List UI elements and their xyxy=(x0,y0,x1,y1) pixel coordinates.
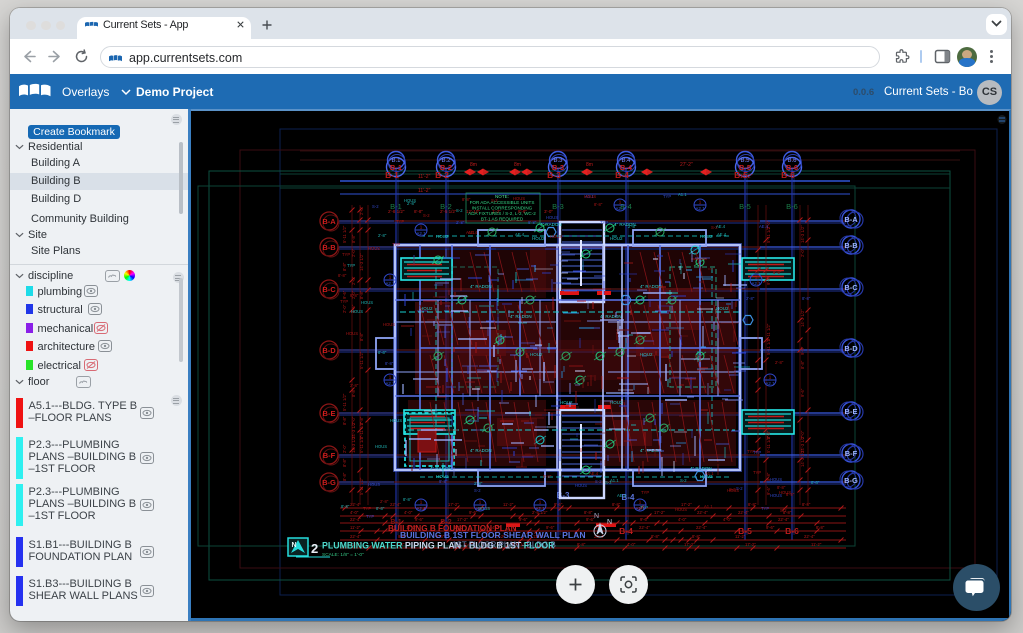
svg-text:TYP: TYP xyxy=(641,490,649,495)
svg-text:2'-0": 2'-0" xyxy=(342,444,347,453)
svg-text:22'-4": 22'-4" xyxy=(696,525,707,530)
svg-text:8m: 8m xyxy=(470,162,477,168)
svg-text:B-E: B-E xyxy=(845,407,858,416)
svg-text:HOUS: HOUS xyxy=(550,234,562,239)
svg-text:17'-2": 17'-2" xyxy=(684,542,695,547)
svg-text:4'-0": 4'-0" xyxy=(627,542,636,547)
svg-text:TYP: TYP xyxy=(342,252,350,257)
svg-text:TYP: TYP xyxy=(753,470,761,475)
svg-text:2'-8": 2'-8" xyxy=(474,481,483,486)
svg-text:2'-8": 2'-8" xyxy=(628,224,637,229)
svg-text:HOU2: HOU2 xyxy=(436,234,449,239)
svg-text:8'-8": 8'-8" xyxy=(414,209,423,214)
svg-text:8'-8": 8'-8" xyxy=(800,360,805,369)
svg-text:8'-8": 8'-8" xyxy=(811,480,820,485)
svg-text:HOUS: HOUS xyxy=(513,196,525,201)
svg-text:B-3: B-3 xyxy=(552,202,564,211)
svg-text:B-D: B-D xyxy=(844,344,858,353)
svg-text:1: 1 xyxy=(539,500,542,505)
svg-text:8'-8": 8'-8" xyxy=(378,350,387,355)
svg-text:17'-2": 17'-2" xyxy=(457,517,468,522)
svg-text:HOUS: HOUS xyxy=(361,300,373,305)
svg-text:1: 1 xyxy=(389,275,392,280)
svg-text:TYP: TYP xyxy=(363,506,371,511)
svg-text:A1.1: A1.1 xyxy=(705,471,714,476)
svg-text:BT-1 AS REQUIRED: BT-1 AS REQUIRED xyxy=(481,217,524,222)
svg-text:1: 1 xyxy=(420,225,423,230)
svg-text:A2.1: A2.1 xyxy=(695,206,705,211)
svg-text:8'-8": 8'-8" xyxy=(439,479,448,484)
svg-text:AE.4: AE.4 xyxy=(759,224,769,229)
svg-text:22'-4": 22'-4" xyxy=(390,502,401,507)
svg-text:AE.4: AE.4 xyxy=(589,471,599,476)
svg-text:2'-8": 2'-8" xyxy=(380,499,389,504)
svg-text:11'-2": 11'-2" xyxy=(811,542,822,547)
svg-text:9'-6": 9'-6" xyxy=(800,346,805,355)
svg-text:A2.1: A2.1 xyxy=(751,281,761,286)
svg-text:S-2: S-2 xyxy=(780,508,787,513)
svg-text:8'-8": 8'-8" xyxy=(692,534,701,539)
svg-text:22'-4": 22'-4" xyxy=(350,534,361,539)
svg-text:HOUS: HOUS xyxy=(346,331,358,336)
svg-text:S-2: S-2 xyxy=(372,204,379,209)
svg-text:B-A: B-A xyxy=(322,217,336,226)
svg-text:HOU2: HOU2 xyxy=(530,352,543,357)
svg-text:8'-8": 8'-8" xyxy=(651,534,660,539)
svg-text:8'-8": 8'-8" xyxy=(342,472,347,481)
svg-text:B-6: B-6 xyxy=(786,202,798,211)
svg-text:14'-3 1/2": 14'-3 1/2" xyxy=(800,225,805,243)
svg-text:8'-8": 8'-8" xyxy=(802,296,811,301)
svg-text:A2.1: A2.1 xyxy=(615,206,625,211)
svg-text:AE.4: AE.4 xyxy=(717,232,727,237)
svg-text:B-F: B-F xyxy=(323,451,336,460)
svg-text:14'-3 1/2": 14'-3 1/2" xyxy=(351,435,356,453)
svg-text:2'-5 1/2": 2'-5 1/2" xyxy=(440,209,457,214)
svg-text:8'-8": 8'-8" xyxy=(351,388,356,397)
svg-text:HOUS: HOUS xyxy=(770,477,782,482)
svg-text:5'-11 1/2": 5'-11 1/2" xyxy=(342,393,347,411)
svg-text:B-C: B-C xyxy=(844,283,858,292)
svg-text:B-5: B-5 xyxy=(739,202,751,211)
svg-text:9'-6": 9'-6" xyxy=(800,388,805,397)
svg-text:2: 2 xyxy=(311,541,318,556)
svg-text:TYP: TYP xyxy=(753,450,761,455)
svg-text:HOUS: HOUS xyxy=(584,194,596,199)
svg-text:HOUS: HOUS xyxy=(351,309,363,314)
svg-text:11'-2": 11'-2" xyxy=(350,525,361,530)
svg-text:N: N xyxy=(291,542,296,549)
svg-text:4'-0": 4'-0" xyxy=(678,517,687,522)
svg-text:TYP: TYP xyxy=(600,220,608,225)
svg-text:1: 1 xyxy=(479,500,482,505)
svg-text:2'-8": 2'-8" xyxy=(456,220,465,225)
svg-text:B-A: B-A xyxy=(844,215,858,224)
svg-text:A2.1: A2.1 xyxy=(635,506,645,511)
svg-text:8'-8": 8'-8" xyxy=(584,510,593,515)
svg-text:HOUS: HOUS xyxy=(368,482,380,487)
svg-text:11'-2": 11'-2" xyxy=(503,502,514,507)
svg-text:9'-6": 9'-6" xyxy=(640,517,649,522)
svg-text:1: 1 xyxy=(699,200,702,205)
svg-text:5'-11 1/2": 5'-11 1/2" xyxy=(359,351,364,369)
svg-text:TYP: TYP xyxy=(340,299,348,304)
svg-text:8'-8": 8'-8" xyxy=(350,293,359,298)
svg-text:8'-8": 8'-8" xyxy=(462,197,471,202)
svg-text:22'-4": 22'-4" xyxy=(804,534,815,539)
svg-text:HOU2: HOU2 xyxy=(700,234,713,239)
svg-text:8'-8": 8'-8" xyxy=(816,525,825,530)
svg-text:5'-11 1/2": 5'-11 1/2" xyxy=(359,421,364,439)
svg-text:2'-8": 2'-8" xyxy=(775,360,784,365)
svg-text:11'-2": 11'-2" xyxy=(418,188,431,194)
svg-text:B-6: B-6 xyxy=(781,170,795,180)
svg-text:A1.1: A1.1 xyxy=(678,192,687,197)
svg-text:8'-8": 8'-8" xyxy=(342,416,347,425)
svg-text:HOUS: HOUS xyxy=(727,488,739,493)
svg-text:2'-8": 2'-8" xyxy=(350,383,359,388)
svg-text:A2.1: A2.1 xyxy=(535,506,545,511)
svg-text:A2.1: A2.1 xyxy=(765,381,775,386)
svg-text:HOUS: HOUS xyxy=(404,198,416,203)
svg-text:5'-11 1/2": 5'-11 1/2" xyxy=(342,225,347,243)
svg-text:SCALE: 1/8" = 1'-0": SCALE: 1/8" = 1'-0" xyxy=(322,552,364,558)
svg-text:HOU2: HOU2 xyxy=(716,306,729,311)
svg-text:8'-8": 8'-8" xyxy=(543,474,552,479)
svg-text:9'-6": 9'-6" xyxy=(342,290,347,299)
svg-text:2'-8": 2'-8" xyxy=(378,233,387,238)
svg-text:22'-4": 22'-4" xyxy=(697,510,708,515)
svg-text:8'-8": 8'-8" xyxy=(359,332,364,341)
svg-text:4'-0": 4'-0" xyxy=(723,517,732,522)
svg-text:N: N xyxy=(594,513,599,520)
svg-text:8'-8": 8'-8" xyxy=(342,458,347,467)
svg-text:9'-6": 9'-6" xyxy=(519,517,528,522)
svg-text:INSTALL CORRESPONDING: INSTALL CORRESPONDING xyxy=(472,206,533,211)
svg-text:A2.1: A2.1 xyxy=(385,381,395,386)
svg-text:1: 1 xyxy=(769,375,772,380)
svg-text:B-4: B-4 xyxy=(615,170,629,180)
svg-text:9'-6": 9'-6" xyxy=(766,525,775,530)
svg-text:1ST FLOOR PLAN - BLDG B: 1ST FLOOR PLAN - BLDG B xyxy=(452,541,556,550)
svg-text:8'-8": 8'-8" xyxy=(802,502,811,507)
svg-text:S-2: S-2 xyxy=(595,479,602,484)
svg-text:8'-8": 8'-8" xyxy=(385,361,394,366)
svg-text:4'-0": 4'-0" xyxy=(350,510,359,515)
svg-text:14'-3 1/2": 14'-3 1/2" xyxy=(800,309,805,327)
svg-text:HOUS: HOUS xyxy=(575,483,587,488)
svg-text:22'-4": 22'-4" xyxy=(738,510,749,515)
svg-text:3'-0": 3'-0" xyxy=(544,209,553,214)
svg-text:8'-8": 8'-8" xyxy=(748,502,757,507)
svg-text:A2.1: A2.1 xyxy=(416,231,426,236)
svg-text:AE.4: AE.4 xyxy=(515,232,525,237)
svg-text:4" RADON: 4" RADON xyxy=(600,314,622,319)
svg-text:A2.1: A2.1 xyxy=(475,506,485,511)
svg-text:8m: 8m xyxy=(586,162,593,168)
svg-text:27'-2": 27'-2" xyxy=(680,162,693,168)
svg-text:B-C: B-C xyxy=(322,285,336,294)
svg-text:TYP: TYP xyxy=(761,506,769,511)
svg-text:22'-4": 22'-4" xyxy=(778,517,789,522)
svg-text:8'-8": 8'-8" xyxy=(577,542,586,547)
svg-text:2'-8": 2'-8" xyxy=(746,296,755,301)
svg-text:5'-11 1/2": 5'-11 1/2" xyxy=(359,477,364,495)
svg-text:8m: 8m xyxy=(514,162,521,168)
svg-text:B-F: B-F xyxy=(845,449,858,458)
svg-text:17'-2": 17'-2" xyxy=(745,542,756,547)
svg-text:HOUS: HOUS xyxy=(770,493,782,498)
svg-text:A2.1: A2.1 xyxy=(416,506,426,511)
svg-text:HOUS: HOUS xyxy=(368,246,380,251)
svg-text:TYP: TYP xyxy=(396,219,404,224)
svg-text:S-2: S-2 xyxy=(605,480,612,485)
svg-text:11'-2": 11'-2" xyxy=(418,174,431,180)
svg-text:8'-8": 8'-8" xyxy=(773,270,782,275)
svg-text:8'-8": 8'-8" xyxy=(341,504,350,509)
svg-text:HOUS: HOUS xyxy=(390,418,402,423)
svg-text:11'-2": 11'-2" xyxy=(740,174,753,180)
svg-text:AE.4: AE.4 xyxy=(468,230,478,235)
svg-text:HOUS: HOUS xyxy=(383,322,395,327)
svg-text:8'-8": 8'-8" xyxy=(338,273,347,278)
svg-text:TYP: TYP xyxy=(392,242,400,247)
svg-text:1: 1 xyxy=(389,375,392,380)
svg-text:8'-8": 8'-8" xyxy=(351,234,356,243)
svg-text:8'-8": 8'-8" xyxy=(376,506,385,511)
svg-text:HOUS: HOUS xyxy=(675,507,687,512)
svg-text:A1.1: A1.1 xyxy=(704,504,713,509)
svg-text:17'-2": 17'-2" xyxy=(448,502,459,507)
svg-text:B-2: B-2 xyxy=(435,170,449,180)
svg-text:B-G: B-G xyxy=(322,478,336,487)
svg-text:B-G: B-G xyxy=(844,476,858,485)
svg-text:2'-0": 2'-0" xyxy=(351,276,356,285)
svg-text:22'-4": 22'-4" xyxy=(350,517,361,522)
svg-text:AE.4: AE.4 xyxy=(716,224,726,229)
svg-text:5'-11 1/2": 5'-11 1/2" xyxy=(766,337,771,355)
svg-text:B-B: B-B xyxy=(844,241,858,250)
svg-text:A2.1: A2.1 xyxy=(385,281,395,286)
svg-text:8'-8": 8'-8" xyxy=(594,202,603,207)
svg-text:14'-3 1/2": 14'-3 1/2" xyxy=(800,435,805,453)
svg-text:B-1: B-1 xyxy=(385,170,399,180)
svg-text:N: N xyxy=(607,519,612,526)
svg-text:S-2: S-2 xyxy=(423,213,430,218)
svg-text:1: 1 xyxy=(639,500,642,505)
svg-text:S-2: S-2 xyxy=(474,488,481,493)
svg-text:8'-8": 8'-8" xyxy=(403,497,412,502)
svg-text:4" RADON: 4" RADON xyxy=(470,448,492,453)
svg-text:5'-11 1/2": 5'-11 1/2" xyxy=(766,435,771,453)
svg-text:B-E: B-E xyxy=(323,409,336,418)
svg-text:1: 1 xyxy=(420,500,423,505)
svg-text:14'-3 1/2": 14'-3 1/2" xyxy=(359,253,364,271)
svg-text:2'-0": 2'-0" xyxy=(800,248,805,257)
svg-text:ADA FIXTURES / S-2, L-2, WC-2: ADA FIXTURES / S-2, L-2, WC-2 xyxy=(468,211,536,216)
svg-text:HOU2: HOU2 xyxy=(610,236,623,241)
svg-text:S-2: S-2 xyxy=(456,208,463,213)
svg-text:17'-2": 17'-2" xyxy=(654,510,665,515)
svg-text:4" RADON: 4" RADON xyxy=(470,284,492,289)
svg-text:8'-8": 8'-8" xyxy=(612,502,621,507)
svg-text:4" RADON: 4" RADON xyxy=(430,466,452,471)
svg-text:4'-0": 4'-0" xyxy=(404,510,413,515)
svg-text:S-2: S-2 xyxy=(680,478,687,483)
svg-text:9'-6": 9'-6" xyxy=(766,276,771,285)
svg-text:AE.4: AE.4 xyxy=(617,493,627,498)
svg-text:HOUS: HOUS xyxy=(375,444,387,449)
svg-text:2'-0": 2'-0" xyxy=(342,304,347,313)
svg-text:2'-0": 2'-0" xyxy=(359,206,364,215)
svg-text:8'-8": 8'-8" xyxy=(359,290,364,299)
svg-text:2'-8 1/2": 2'-8 1/2" xyxy=(388,209,405,214)
svg-text:11'-2": 11'-2" xyxy=(735,534,746,539)
svg-text:2'-0": 2'-0" xyxy=(351,248,356,257)
svg-text:TYP: TYP xyxy=(347,263,355,268)
svg-text:S-2: S-2 xyxy=(491,198,498,203)
svg-text:TYP: TYP xyxy=(663,194,671,199)
svg-text:9'-6": 9'-6" xyxy=(554,502,563,507)
svg-text:HOUS: HOUS xyxy=(546,215,558,220)
svg-text:BUILDING B 1ST FLOOR SHEAR WAL: BUILDING B 1ST FLOOR SHEAR WALL PLAN xyxy=(400,530,586,540)
svg-text:B-B: B-B xyxy=(322,243,336,252)
svg-text:HOU2: HOU2 xyxy=(420,306,433,311)
svg-text:22'-4": 22'-4" xyxy=(639,525,650,530)
svg-text:8'-8": 8'-8" xyxy=(528,220,537,225)
svg-text:TYP: TYP xyxy=(366,514,374,519)
svg-text:HOU2: HOU2 xyxy=(532,236,545,241)
svg-text:B-3: B-3 xyxy=(547,170,561,180)
svg-text:B-D: B-D xyxy=(322,346,336,355)
svg-text:9'-6": 9'-6" xyxy=(415,517,424,522)
